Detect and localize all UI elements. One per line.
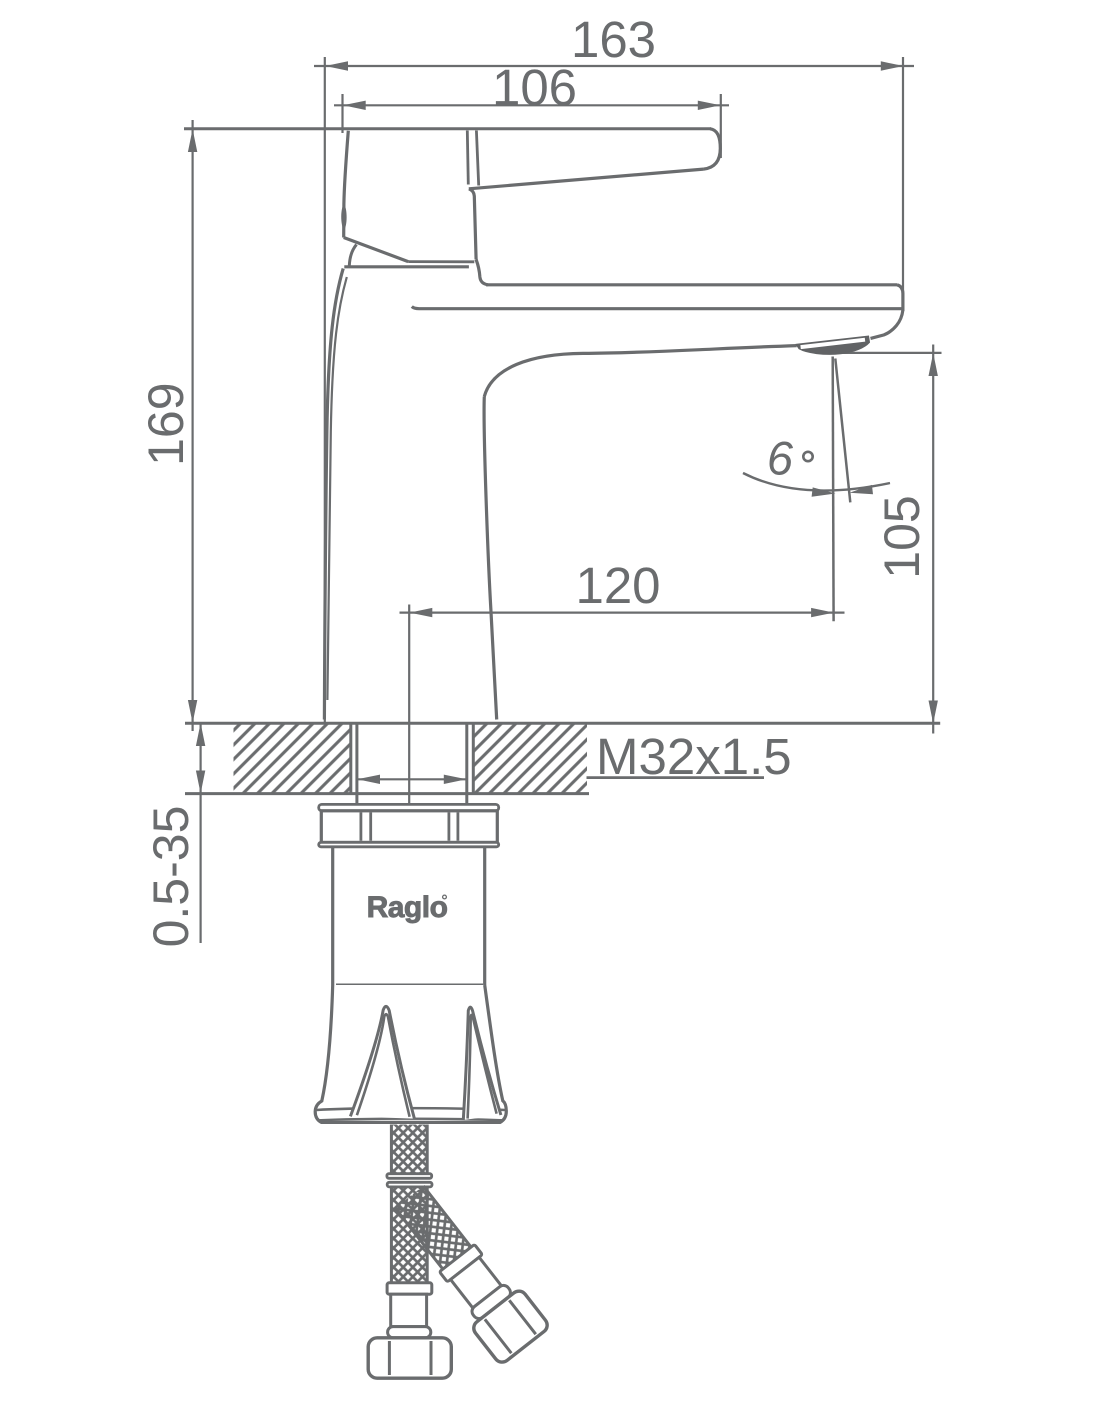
svg-text:105: 105 bbox=[874, 495, 930, 578]
svg-text:6: 6 bbox=[767, 432, 794, 485]
svg-text:106: 106 bbox=[492, 59, 577, 116]
svg-text:0.5-35: 0.5-35 bbox=[143, 806, 199, 948]
svg-text:163: 163 bbox=[571, 11, 656, 68]
svg-text:120: 120 bbox=[575, 557, 660, 614]
svg-text:169: 169 bbox=[138, 382, 194, 465]
svg-text:Raglo: Raglo bbox=[367, 891, 448, 924]
